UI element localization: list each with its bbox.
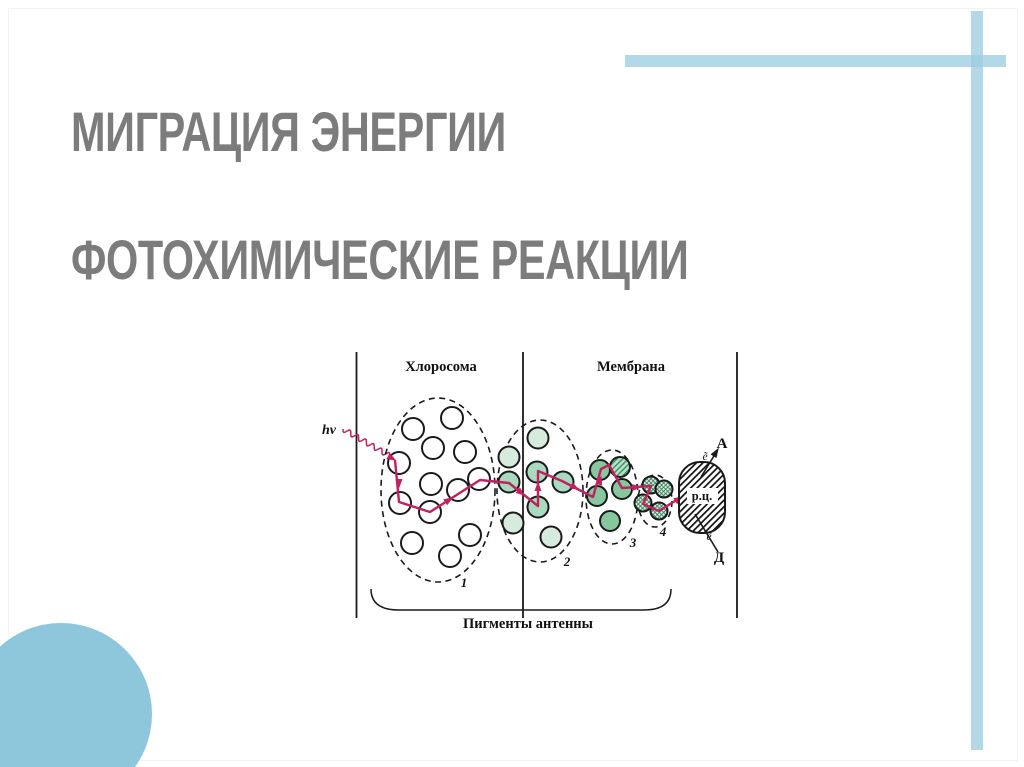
pigment-circle: [499, 447, 520, 468]
energy-migration-diagram: ХлоросомаМембранаhν1234р.ц.АДẽẽПигменты …: [320, 340, 770, 640]
pigment-circle: [528, 428, 549, 449]
slide-title-line2: ФОТОХИМИЧЕСКИЕ РЕАКЦИИ: [71, 231, 688, 290]
group-number: 1: [461, 575, 468, 590]
accent-bars-intersection: [971, 55, 983, 67]
presentation-slide: МИГРАЦИЯ ЭНЕРГИИ ФОТОХИМИЧЕСКИЕ РЕАКЦИИ …: [0, 0, 1024, 767]
group-number: 3: [629, 535, 637, 550]
group-number: 4: [659, 524, 667, 539]
pigment-circle: [454, 441, 476, 463]
pigment-circle: [422, 437, 444, 459]
donor-label: Д: [714, 550, 725, 566]
electron-label: ẽ: [706, 531, 712, 543]
pigment-circle: [459, 524, 481, 546]
group-number: 2: [563, 554, 571, 569]
pigment-circle: [401, 532, 423, 554]
photon-label: hν: [322, 423, 337, 438]
pigment-circle: [420, 473, 442, 495]
pigment-circle: [541, 527, 562, 548]
accent-horizontal-bar: [625, 55, 1006, 67]
pigment-circle: [441, 407, 463, 429]
pigment-circle: [656, 481, 673, 498]
pigment-circle: [439, 545, 461, 567]
accent-corner-circle: [0, 623, 152, 767]
acceptor-label: А: [717, 436, 728, 452]
section-label: Мембрана: [597, 359, 666, 375]
antenna-pigments-label: Пигменты антенны: [463, 616, 593, 632]
pigment-circle: [503, 513, 524, 534]
accent-vertical-bar: [971, 11, 983, 750]
pigment-circle: [600, 511, 620, 531]
photon-squiggle: [343, 429, 396, 459]
reaction-center-label: р.ц.: [692, 489, 712, 503]
slide-title-line1: МИГРАЦИЯ ЭНЕРГИИ: [71, 103, 506, 162]
pigment-circle: [402, 418, 424, 440]
section-label: Хлоросома: [405, 359, 477, 375]
electron-label: ẽ: [702, 451, 708, 463]
antenna-brace: [371, 589, 671, 610]
